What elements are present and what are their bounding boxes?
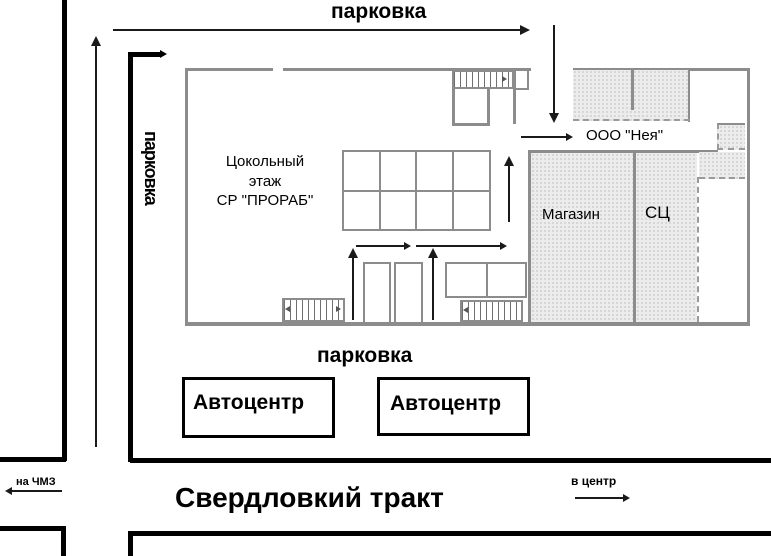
stair-corridor-wall: [513, 89, 516, 124]
interior-up-arrow-1-icon: [348, 248, 358, 258]
cross-road-west-edge-south: [61, 526, 66, 556]
left-road-east-edge: [128, 52, 133, 462]
basement-label-line1: Цокольный: [196, 152, 334, 172]
parking-entry-edge: [128, 52, 160, 57]
northeast-room-divider: [631, 70, 634, 110]
interior-up-line-3: [508, 165, 510, 222]
road-direction-up-arrow-icon: [91, 36, 101, 46]
building-south-wall: [185, 322, 750, 326]
south-window-room-divider: [486, 264, 488, 296]
center-direction-line: [575, 497, 625, 499]
room-grid: [342, 150, 491, 231]
parking-left-label: парковка: [140, 131, 160, 205]
northeast-room-dashed-south: [573, 119, 690, 121]
parking-top-route-line: [113, 29, 523, 31]
autocenter-left-box: Автоцентр: [182, 377, 335, 438]
north-stair-landing: [514, 69, 529, 90]
shop-west-wall: [528, 150, 531, 326]
basement-label: Цокольный этаж СР "ПРОРАБ": [196, 152, 334, 211]
basement-label-line2: этаж: [196, 172, 334, 192]
interior-up-line-1: [352, 257, 354, 320]
south-stairs-right-direction-icon: [463, 307, 468, 313]
east-utility-room-upper: [717, 123, 745, 150]
south-window-room: [445, 262, 527, 298]
interior-flow-arrow-1-icon: [404, 242, 411, 250]
autocenter-left-label: Автоцентр: [193, 391, 304, 414]
service-center-label: СЦ: [645, 204, 670, 223]
south-stairs-left-direction2-icon: [336, 306, 341, 312]
interior-flow-arrow-2-icon: [500, 242, 507, 250]
parking-top-route-arrow-icon: [520, 25, 530, 35]
site-plan-map: парковка парковка парковка Цокольный эта…: [0, 0, 771, 556]
neya-pointer-line: [521, 136, 567, 138]
center-direction-label: в центр: [571, 475, 616, 488]
chmz-direction-arrow-icon: [5, 487, 12, 495]
autocenter-right-box: Автоцентр: [377, 377, 530, 436]
autocenter-right-label: Автоцентр: [390, 392, 501, 415]
service-center-area: [636, 153, 697, 322]
neya-pointer-arrow-icon: [566, 133, 573, 141]
street-south-edge-left: [0, 526, 66, 531]
stair-room-wall-right: [487, 89, 490, 126]
interior-up-arrow-3-icon: [504, 156, 514, 166]
interior-up-line-2: [432, 257, 434, 320]
left-road-west-edge-corner: [0, 457, 66, 462]
parking-bottom-label: парковка: [317, 344, 412, 367]
south-stairs-left-direction-icon: [285, 306, 290, 312]
north-stairs-direction-icon: [502, 76, 507, 82]
ooo-neya-label: ООО "Нея": [586, 128, 663, 145]
stair-room-wall-left: [452, 89, 455, 126]
center-direction-arrow-icon: [623, 494, 630, 502]
building-north-wall-1: [185, 68, 273, 71]
shop-sc-divider-wall: [633, 153, 636, 322]
stair-room-wall-bottom: [452, 123, 490, 126]
entrance-vestibule-left: [363, 262, 391, 322]
left-road-west-edge: [62, 0, 67, 461]
sc-east-dashed-wall: [697, 177, 699, 322]
entrance-down-line: [553, 25, 555, 115]
northeast-room-east-wall: [688, 70, 690, 122]
entrance-down-arrow-icon: [549, 113, 559, 123]
street-south-edge-right: [128, 531, 771, 536]
interior-flow-line-1: [356, 245, 406, 247]
street-north-edge: [130, 458, 771, 463]
shop-room-area: [531, 153, 633, 322]
road-direction-line: [95, 46, 97, 447]
east-utility-room-lower: [699, 152, 745, 179]
shop-north-wall: [528, 150, 718, 153]
street-name-label: Свердловкий тракт: [175, 483, 444, 514]
chmz-direction-label: на ЧМЗ: [16, 476, 56, 488]
interior-flow-line-2: [416, 245, 502, 247]
interior-up-arrow-2-icon: [428, 248, 438, 258]
entrance-vestibule-right: [394, 262, 423, 322]
building-west-wall: [185, 68, 188, 326]
south-stairs-right: [460, 300, 523, 322]
shop-label: Магазин: [542, 207, 600, 224]
building-east-wall: [747, 68, 750, 326]
grid-wall-h1: [344, 190, 489, 192]
chmz-direction-line: [12, 490, 62, 492]
basement-label-line3: СР "ПРОРАБ": [196, 191, 334, 211]
cross-road-east-edge-south: [128, 531, 133, 556]
parking-entry-arrow-icon: [160, 50, 167, 58]
parking-top-label: парковка: [331, 0, 426, 23]
